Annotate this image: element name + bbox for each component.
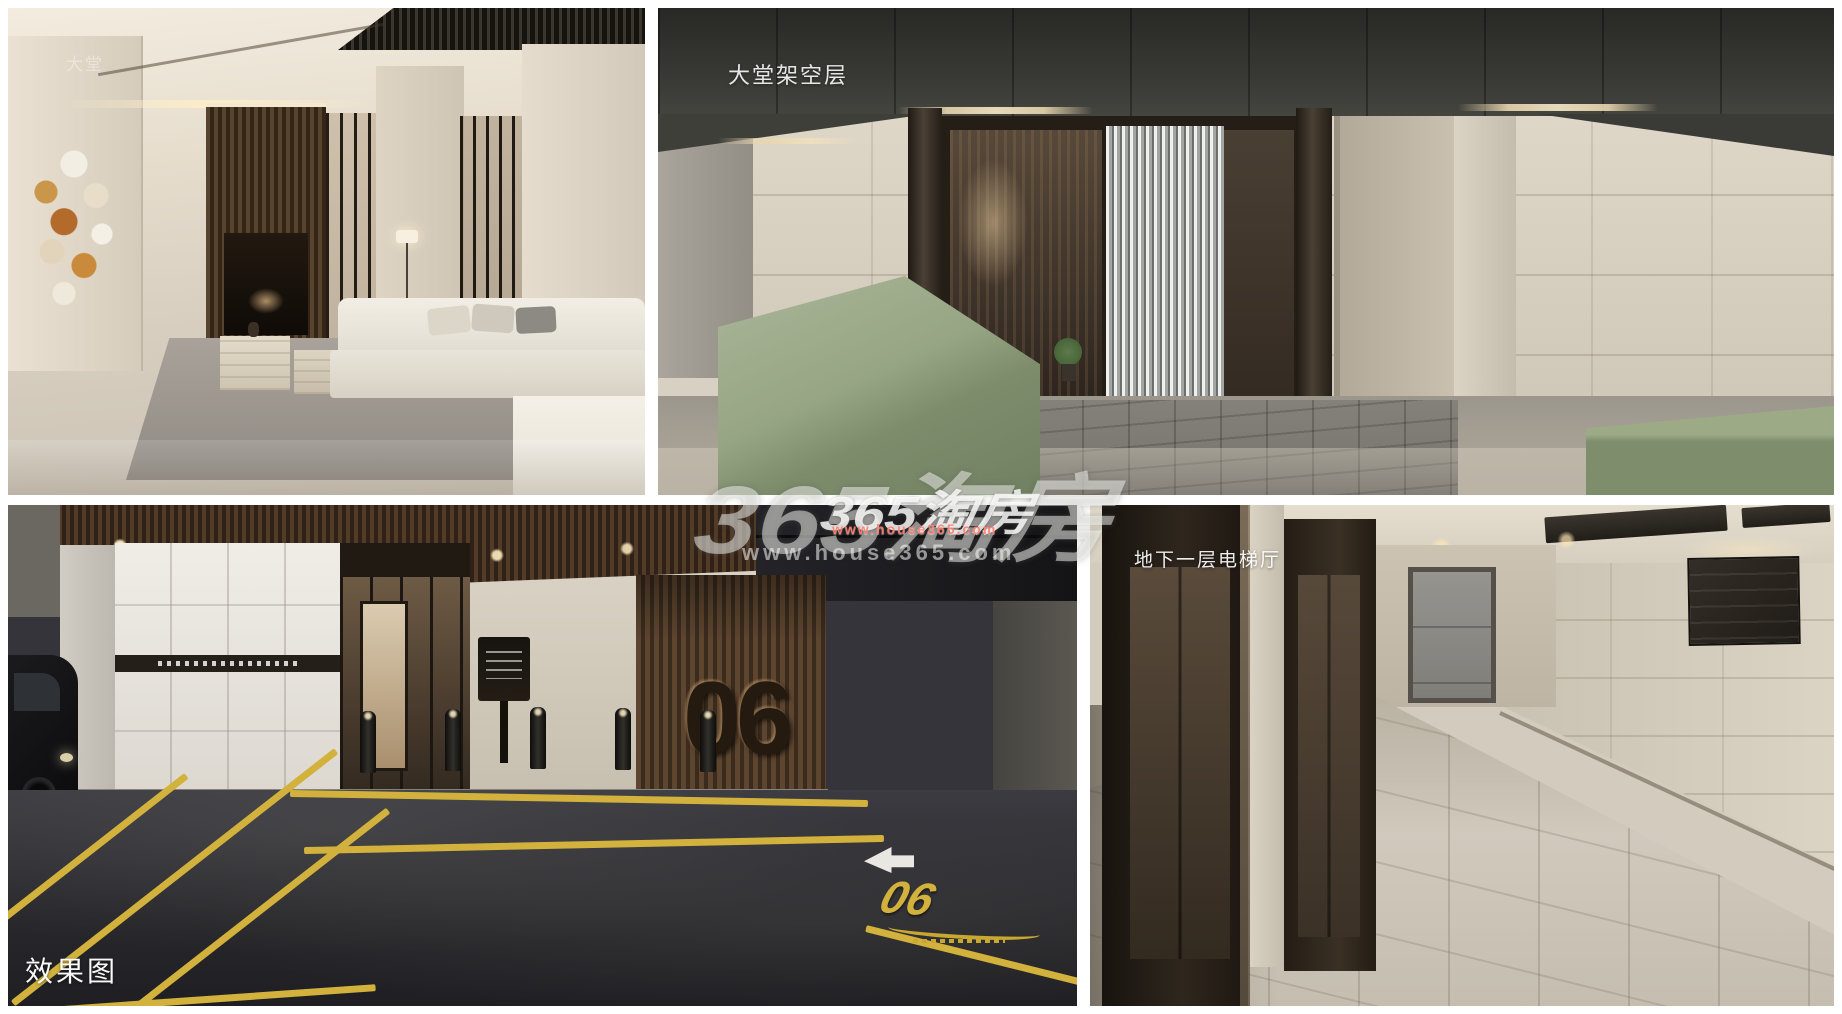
lobby-sofa-cushion: [427, 305, 472, 336]
parking-road-small-marks: [913, 939, 1005, 943]
parking-car-headlight: [60, 753, 73, 762]
parking-bollard: [445, 709, 461, 771]
photo-stilt-floor[interactable]: 大堂架空层: [658, 8, 1834, 495]
elevator-door-left: [1130, 567, 1230, 959]
stilt-potted-plant: [1054, 338, 1082, 366]
stilt-plant-pot: [1062, 364, 1076, 381]
parking-building-number: 06: [654, 653, 818, 785]
elevator-stone-pilaster: [1250, 505, 1284, 967]
lobby-fireplace-niche: [224, 233, 308, 335]
parking-bollard: [360, 711, 376, 773]
lobby-sofa-cushion: [515, 306, 556, 334]
stilt-bronze-column-right: [1296, 108, 1332, 440]
photo-elevator-hall[interactable]: 地下一层电梯厅: [1090, 505, 1834, 1006]
parking-far-wall: [993, 601, 1077, 791]
parking-bollard: [615, 708, 631, 770]
parking-bollard: [700, 710, 716, 772]
lobby-table-vase: [248, 322, 259, 337]
parking-entry-lintel: [340, 543, 470, 577]
parking-car-window: [14, 673, 60, 711]
elevator-caption: 地下一层电梯厅: [1134, 545, 1281, 572]
stilt-entrance-glass-right: [1224, 130, 1294, 406]
stilt-side-recess: [1334, 116, 1454, 408]
photo-lobby[interactable]: 大堂: [8, 8, 645, 495]
elevator-portal-edge-highlight: [1240, 505, 1250, 1006]
parking-caption: 效果图: [25, 950, 118, 990]
stilt-interior-light: [958, 158, 1028, 288]
stilt-ceiling-light: [718, 138, 858, 144]
parking-kiosk-sign-text-marks: [158, 661, 298, 666]
lobby-coffee-table: [220, 336, 290, 390]
lobby-sofa-cushion: [471, 304, 515, 334]
elevator-back-door: [1408, 567, 1496, 703]
parking-ceiling-gray: [8, 505, 60, 617]
lobby-wall-art-discs: [24, 143, 124, 318]
parking-bollard: [530, 707, 546, 769]
lobby-caption: 大堂: [66, 50, 104, 75]
stilt-vertical-louver-screen: [1106, 126, 1224, 412]
stilt-caption: 大堂架空层: [728, 58, 848, 90]
elevator-wall-signage: [1687, 556, 1801, 646]
lobby-floor: [8, 440, 645, 495]
parking-pedestal-sign-post: [500, 701, 508, 763]
stilt-ceiling-light: [1458, 104, 1658, 111]
stilt-right-pillar: [1454, 116, 1516, 416]
parking-pedestal-sign-rows: [486, 651, 522, 679]
lobby-sofa-seat: [330, 350, 645, 398]
lobby-floor-lamp-shade: [396, 230, 418, 243]
watermark-url-small: www.house365.com: [832, 521, 997, 537]
lobby-fireplace-glow: [248, 288, 284, 314]
elevator-door-second: [1298, 575, 1360, 937]
render-gallery-collage: 大堂 大堂架空层: [0, 0, 1842, 1014]
